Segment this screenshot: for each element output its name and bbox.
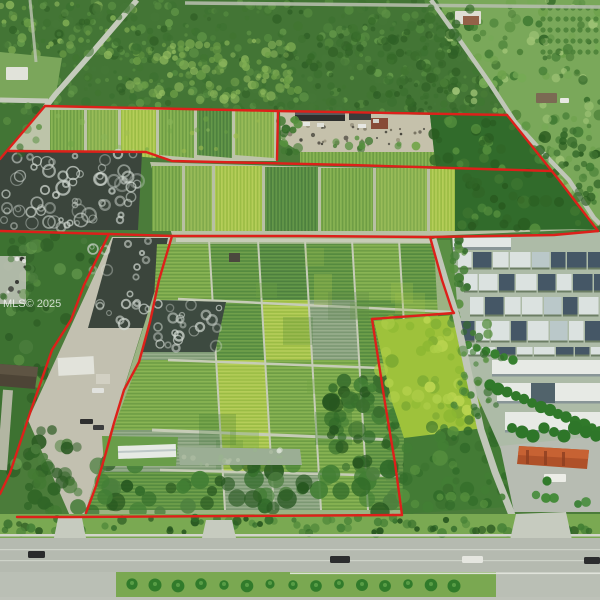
svg-text:MLS© 2025: MLS© 2025 <box>3 298 61 310</box>
